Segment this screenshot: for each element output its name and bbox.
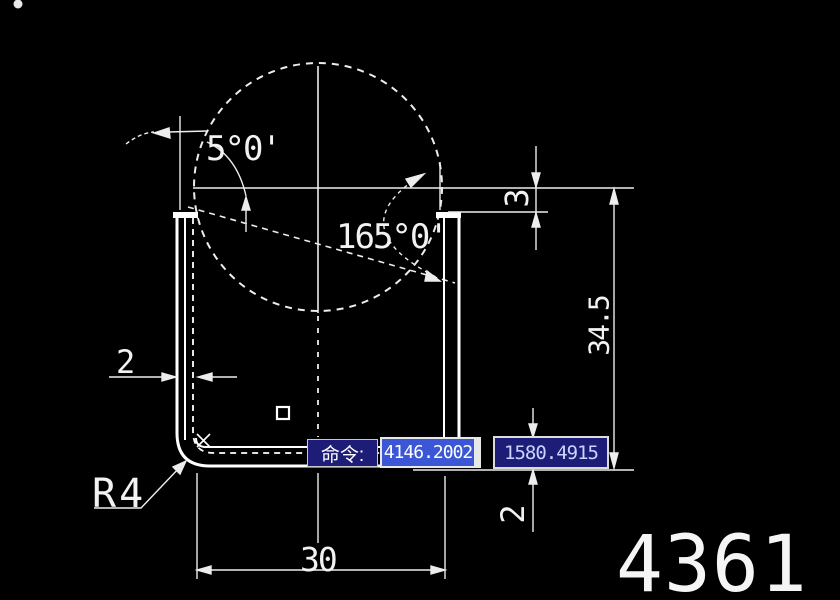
coord-x-box[interactable]: 4146.2002 xyxy=(380,437,481,468)
angle165-arrow-top xyxy=(406,174,424,187)
dim345-arrow-down xyxy=(610,453,618,468)
angle5-arrow-down xyxy=(242,197,250,210)
angle5-arrow-left xyxy=(154,128,170,138)
dim-2-flange-label: 2 xyxy=(494,506,532,523)
coord-x-value: 4146.2002 xyxy=(384,442,473,463)
coord-y-value: 1580.4915 xyxy=(504,442,598,464)
dim-angle-165-label: 165°0' xyxy=(336,217,447,257)
stray-mark xyxy=(14,0,23,9)
coord-y-box[interactable]: 1580.4915 xyxy=(493,436,609,469)
dimension-lines xyxy=(94,116,634,579)
cad-viewport[interactable]: 5°0' 165°0' 3 34.5 2 2 30 R4 4361 命令: 41… xyxy=(0,0,840,600)
dim-2-web-label: 2 xyxy=(116,343,133,381)
dim3-arrow-down xyxy=(532,173,540,187)
command-prompt-label: 命令: xyxy=(321,440,364,467)
dim3-arrow-up xyxy=(532,213,540,227)
dim30-arrow-right xyxy=(431,566,445,574)
dim-34-5-label: 34.5 xyxy=(583,296,616,355)
dim-angle-5-label: 5°0' xyxy=(206,129,280,169)
dim345-arrow-up xyxy=(610,189,618,204)
grip-square[interactable] xyxy=(277,407,289,419)
angle5-ext-arc xyxy=(126,132,154,144)
command-prompt-box[interactable]: 命令: xyxy=(307,439,378,467)
part-number: 4361 xyxy=(616,520,808,600)
dim2l-arrow-right xyxy=(162,373,176,381)
angle5-tail xyxy=(168,131,208,132)
dim2l-arrow-left xyxy=(198,373,212,381)
radius-r4-label: R4 xyxy=(92,471,146,517)
angle165-arrow-bottom xyxy=(425,271,440,281)
dim-30-label: 30 xyxy=(300,540,336,579)
dim-3-label: 3 xyxy=(498,190,536,207)
dim30-arrow-left xyxy=(197,566,211,574)
dim2b-arrow-up xyxy=(529,470,537,484)
